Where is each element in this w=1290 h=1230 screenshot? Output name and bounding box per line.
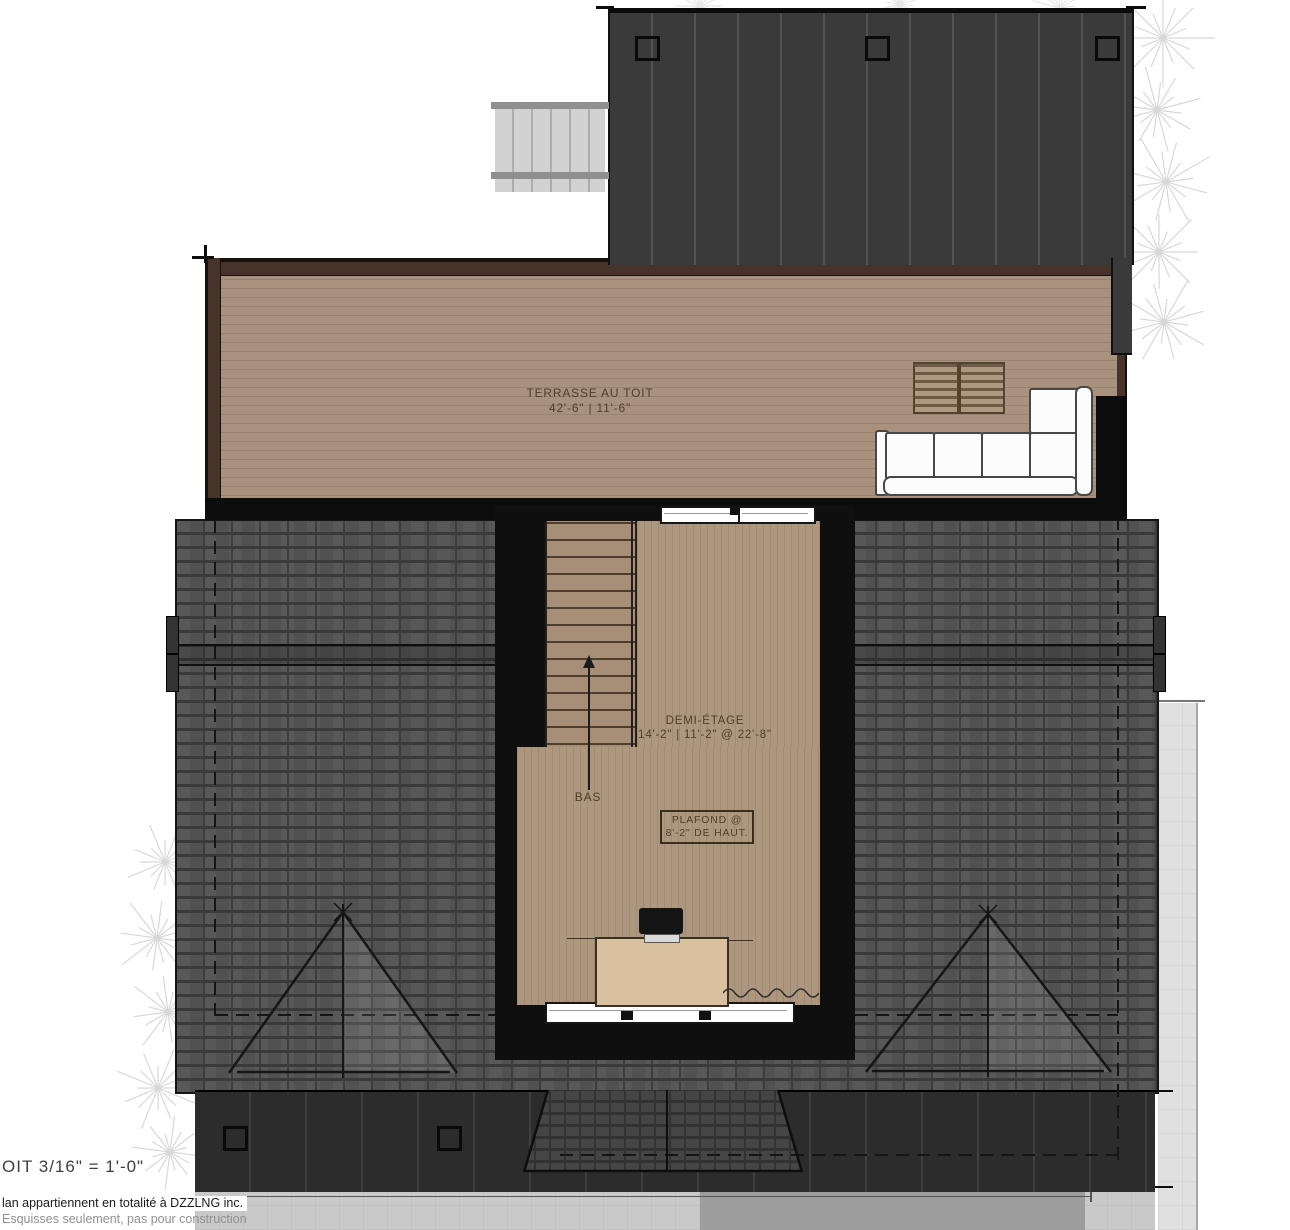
door-panel (738, 506, 816, 524)
ceiling-note-line1: PLAFOND @ (664, 814, 750, 827)
roof-vent-square (865, 36, 890, 61)
break-squiggle (723, 986, 819, 1000)
sofa-cushion (885, 432, 935, 480)
sofa-cushion (1029, 432, 1079, 480)
terrace-title: TERRASSE AU TOIT (430, 386, 750, 401)
penthouse-step-right (1111, 258, 1132, 355)
eave-tick (1155, 1186, 1173, 1188)
exterior-stair (495, 102, 605, 192)
setback-dashed-right (1117, 520, 1119, 1160)
dimension-line (238, 1196, 1092, 1197)
setback-dashed-bottom (560, 1154, 1118, 1156)
demi-etage-label: DEMI-ÉTAGE 14'-2" | 11'-2" @ 22'-8" (600, 714, 810, 743)
chair-base (644, 934, 680, 943)
sofa-cushion (1029, 388, 1079, 434)
stair-rail-bottom (491, 172, 609, 179)
terrace-sliding-door (660, 505, 812, 522)
footer-ownership: lan appartiennent en totalité à DZZLNG i… (0, 1196, 247, 1211)
setback-dashed-right-horiz (855, 1014, 1118, 1016)
corner-tick (192, 256, 214, 259)
roof-vent-square (635, 36, 660, 61)
ceiling-note-box: PLAFOND @ 8'-2" DE HAUT. (660, 810, 754, 844)
corner-tick (1126, 6, 1146, 9)
terrace-label: TERRASSE AU TOIT 42'-6" | 11'-6" (430, 386, 750, 416)
demi-etage-block: BAS DEMI-ÉTAGE 14'-2" | 11'-2" @ 22'-8" … (495, 505, 855, 1060)
sofa-backrest-corner (1075, 386, 1093, 496)
stair-rail-top (491, 102, 609, 109)
facade-vent-square (223, 1126, 248, 1151)
sofa-cushion (933, 432, 983, 480)
scale-label: OIT 3/16" = 1'-0" (2, 1157, 144, 1177)
roof-side-bump (1153, 654, 1166, 692)
sofa-backrest (883, 476, 1079, 496)
floor-plan-page: { "document": { "type": "architectural r… (0, 0, 1290, 1230)
bay-roof-trapezoid (521, 1090, 805, 1172)
terrace-corner-mass (1096, 396, 1127, 520)
window-mullion (699, 1011, 711, 1020)
stairs-arrowhead-icon (583, 655, 595, 668)
door-jamb (730, 507, 740, 515)
roof-vent-square (1095, 36, 1120, 61)
walkway-right (1158, 703, 1198, 1230)
door-panel-line (664, 513, 732, 514)
roof-terrace: TERRASSE AU TOIT 42'-6" | 11'-6" (205, 258, 1127, 505)
window-frame-line (549, 1010, 787, 1011)
setback-dashed-left-horiz (215, 1014, 501, 1016)
desk (595, 937, 729, 1007)
door-panel-line (742, 513, 808, 514)
roof-side-bump (166, 616, 179, 654)
window-mullion (621, 1011, 633, 1020)
demi-etage-title: DEMI-ÉTAGE (600, 714, 810, 728)
penthouse-volume (608, 8, 1134, 265)
setback-dashed-left (214, 520, 216, 1016)
office-chair (639, 908, 683, 934)
stairs-down-label: BAS (558, 790, 618, 805)
door-panel (660, 506, 740, 524)
desk-edge-line (567, 938, 597, 939)
terrace-sectional-sofa (205, 258, 1127, 505)
corner-tick (596, 6, 614, 9)
ground-driveway (700, 1192, 1085, 1230)
footer-disclaimer: Esquisses seulement, pas pour constructi… (0, 1212, 247, 1226)
roof-side-bump (1153, 616, 1166, 654)
demi-etage-dimensions: 14'-2" | 11'-2" @ 22'-8" (600, 728, 810, 742)
terrace-dimensions: 42'-6" | 11'-6" (430, 401, 750, 416)
stairs-direction-arrow (588, 664, 590, 790)
facade-vent-square (437, 1126, 462, 1151)
eave-tick (1155, 1090, 1173, 1092)
roof-side-bump (166, 654, 179, 692)
corner-tick (204, 245, 207, 263)
ceiling-note-line2: 8'-2" DE HAUT. (664, 827, 750, 840)
sofa-cushion (981, 432, 1031, 480)
